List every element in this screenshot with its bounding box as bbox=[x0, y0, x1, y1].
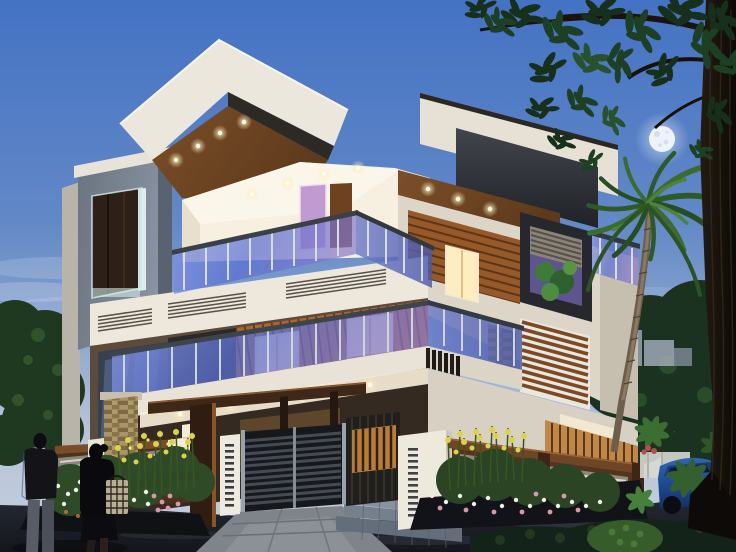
dusk-house-render bbox=[0, 0, 736, 552]
gate-pillar-left bbox=[220, 434, 240, 516]
dark-slat-wall bbox=[346, 412, 400, 506]
left-edge-pillar bbox=[62, 182, 80, 472]
lit-slat-opening bbox=[352, 425, 396, 473]
tower-wood-window bbox=[92, 188, 142, 298]
scene-canvas bbox=[0, 0, 736, 552]
slatted-gate bbox=[241, 423, 346, 512]
handbag bbox=[106, 476, 128, 514]
